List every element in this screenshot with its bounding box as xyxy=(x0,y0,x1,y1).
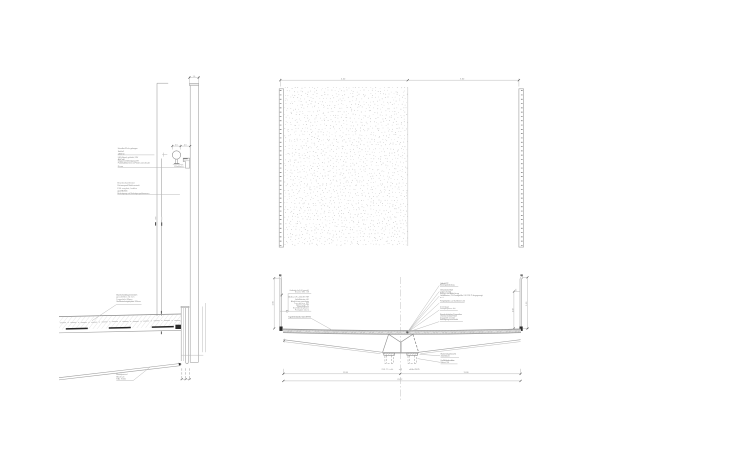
svg-text:F90 verglast, farblos: F90 verglast, farblos xyxy=(117,187,136,190)
svg-text:Beton C50: Beton C50 xyxy=(441,361,450,364)
svg-text:11.86: 11.86 xyxy=(464,372,470,374)
svg-text:mit: mit xyxy=(440,296,444,299)
svg-text:Befestigung verschraubt: Befestigung verschraubt xyxy=(440,318,458,321)
svg-text:Dampfsperre bit.: Dampfsperre bit. xyxy=(440,307,456,310)
svg-text:Rahmenprofil Stahl verzinkt: Rahmenprofil Stahl verzinkt xyxy=(117,184,140,187)
svg-text:35: 35 xyxy=(516,288,518,291)
svg-text:±0.00 = 253.75: ±0.00 = 253.75 xyxy=(409,369,420,371)
svg-text:Fertigteil 12cm: Fertigteil 12cm xyxy=(295,308,309,311)
svg-text:Gefällebeton, 2% Randgefälle /: Gefällebeton, 2% Randgefälle / OK 253.75… xyxy=(440,294,483,297)
svg-text:Fertigteilplatte aus Stahlbeto: Fertigteilplatte aus Stahlbeton C50 xyxy=(440,299,466,302)
svg-text:Brüstungsabdeckung: Brüstungsabdeckung xyxy=(440,284,455,287)
svg-text:Aufbau OK +254.88 / RH: Aufbau OK +254.88 / RH xyxy=(288,295,309,298)
svg-text:120x60x10: 120x60x10 xyxy=(174,166,183,168)
svg-text:23.72: 23.72 xyxy=(397,379,403,381)
svg-text:Stahlbetonfertigteilplatte 120: Stahlbetonfertigteilplatte 120mm xyxy=(116,300,141,303)
svg-text:Punkthalteklammer an Pfosten,: Punkthalteklammer an Pfosten, verschraub… xyxy=(118,161,150,164)
svg-text:Handlauf Rohr gebogen: Handlauf Rohr gebogen xyxy=(118,147,139,150)
svg-text:Stahl t=2: Stahl t=2 xyxy=(118,150,125,153)
svg-text:253.75 ü.A.: 253.75 ü.A. xyxy=(382,368,394,371)
svg-text:RAL 9006: RAL 9006 xyxy=(116,378,126,381)
svg-text:11.86: 11.86 xyxy=(343,372,349,374)
